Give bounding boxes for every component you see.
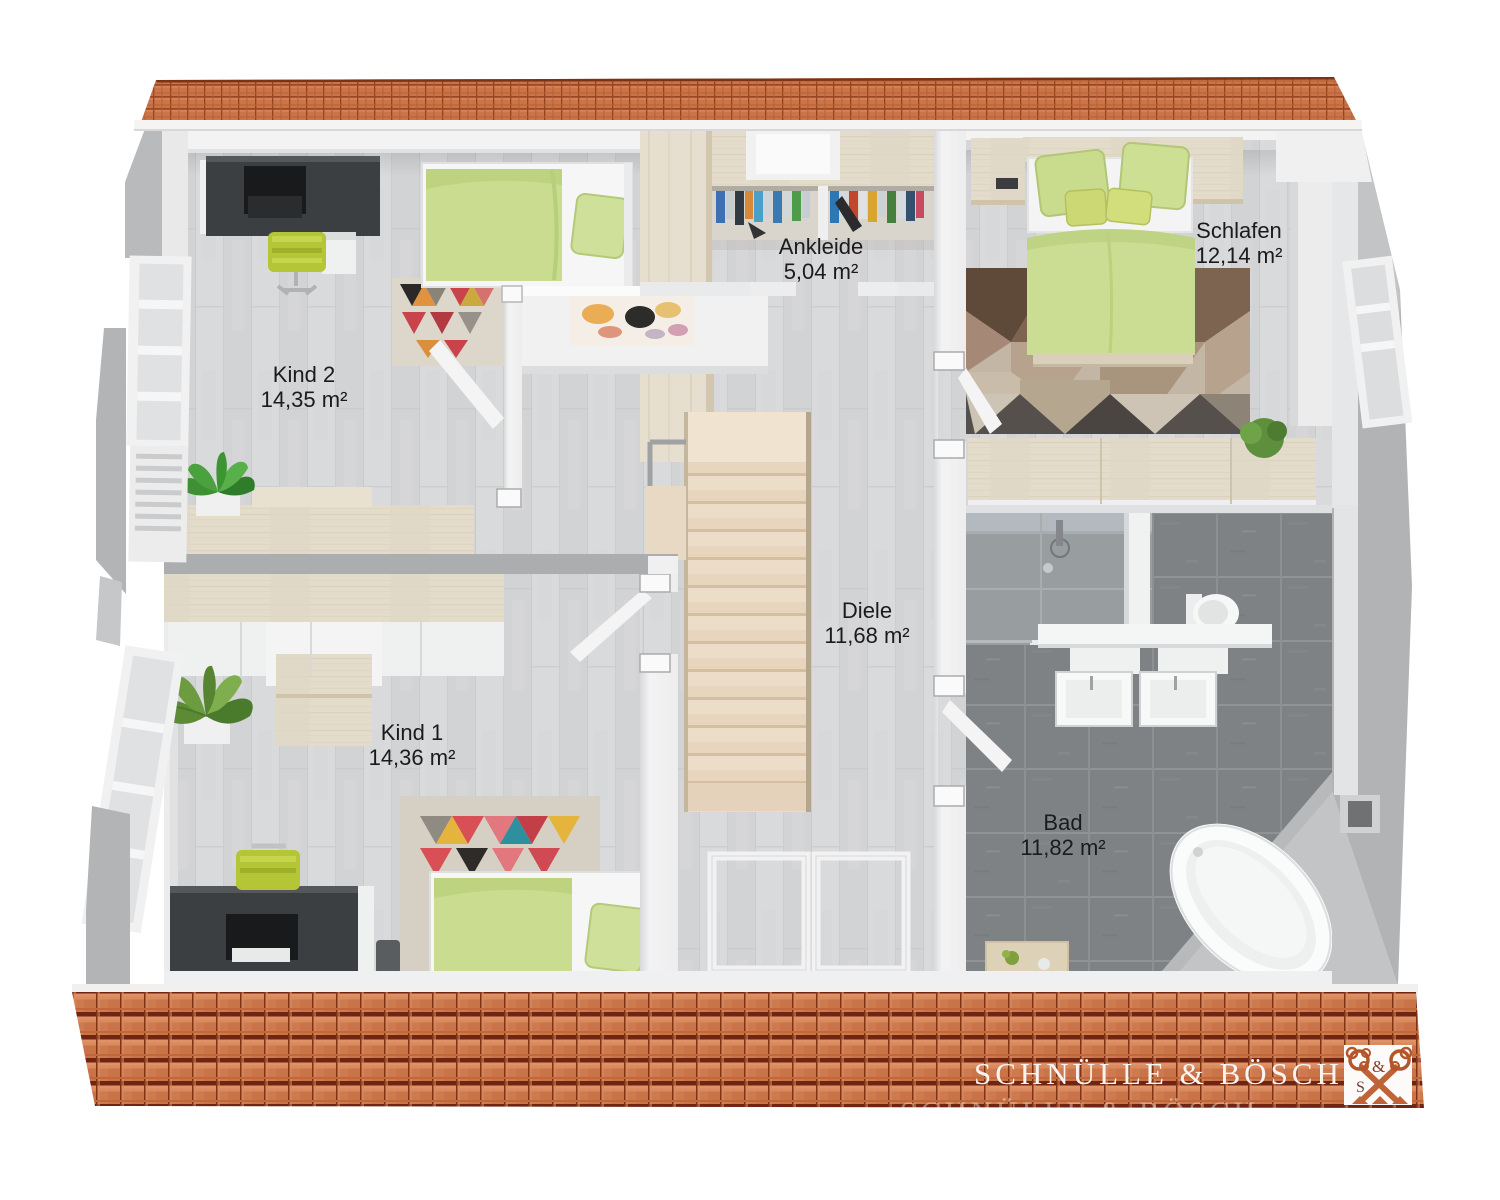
svg-text:S: S <box>1356 1079 1365 1096</box>
svg-text:&: & <box>1372 1057 1385 1076</box>
